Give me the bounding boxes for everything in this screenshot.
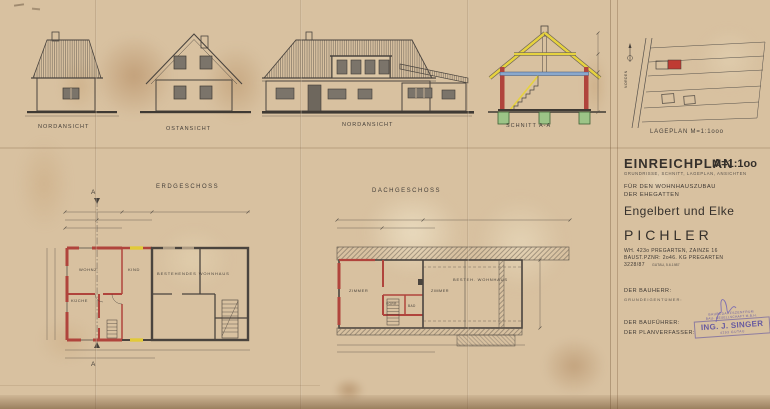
room-label-bestand: BESTEHENDES WOHNHAUS xyxy=(157,271,230,276)
wall-section xyxy=(584,76,589,111)
siteplan-drawing: NORDEN xyxy=(622,32,768,132)
role-grundeigentuemer: GRUNDEIGENTÜMER: xyxy=(624,297,682,302)
room-label-kind: KIND xyxy=(128,267,140,272)
dormer-window xyxy=(351,60,361,74)
room-label-zimmer1: ZIMMER xyxy=(349,288,368,293)
elevation-east-drawing xyxy=(138,24,253,116)
knee-wall xyxy=(584,67,589,72)
neighbour-building xyxy=(684,96,696,105)
dormer-window xyxy=(337,60,347,74)
elevation1-label: NORDANSICHT xyxy=(38,124,89,130)
stair xyxy=(107,320,117,338)
fold-line xyxy=(610,0,611,409)
room-label-vorraum: VORR. xyxy=(386,302,398,306)
window xyxy=(358,89,372,99)
plan-outline xyxy=(339,260,522,328)
ground-line xyxy=(262,111,474,114)
ceiling-slab xyxy=(500,72,589,76)
section-marker-a-top: A xyxy=(91,189,96,196)
north-label: NORDEN xyxy=(624,70,628,88)
address-line2: BAUST.PZNR: 2o46. KG PREGARTEN xyxy=(624,255,723,261)
door xyxy=(308,85,321,111)
knee-wall xyxy=(500,67,505,72)
window xyxy=(328,89,346,99)
window xyxy=(276,88,294,99)
crease-line xyxy=(0,147,770,149)
chimney xyxy=(418,279,423,285)
door-swing xyxy=(112,294,122,304)
elevation-north-small-drawing xyxy=(25,28,120,118)
road xyxy=(632,38,646,128)
stair xyxy=(222,300,238,338)
owner-first-names: Engelbert und Elke xyxy=(624,204,734,218)
section-a-a-drawing xyxy=(488,20,606,126)
fold-tick xyxy=(14,3,24,6)
room-label-bad: BAD xyxy=(408,304,416,308)
parcel-boundary xyxy=(648,70,763,76)
dachgeschoss-plan-drawing: ZIMMER VORR. BAD ZIMMER BESTEH. WOHNHAUS xyxy=(325,195,580,355)
wall xyxy=(156,80,232,111)
roof xyxy=(33,40,101,78)
window xyxy=(200,56,212,69)
new-building-red xyxy=(668,60,681,69)
erdgeschoss-title: ERDGESCHOSS xyxy=(156,184,219,190)
annex-window xyxy=(442,90,455,99)
room-label-bestand: BESTEH. WOHNHAUS xyxy=(453,277,508,282)
existing-wall-hatched xyxy=(499,260,504,328)
erdgeschoss-plan-drawing: A A xyxy=(35,178,310,368)
role-baufuehrer: DER BAUFÜHRER: xyxy=(624,320,680,326)
ground-line xyxy=(140,111,251,113)
plan-number: 3228/87 xyxy=(624,262,645,268)
address-line1: WH. 423o PREGARTEN, ZAINZE 16 xyxy=(624,248,718,254)
owner-surname: PICHLER xyxy=(624,227,713,243)
neighbour-building xyxy=(662,94,675,104)
room-label-zimmer2: ZIMMER xyxy=(431,289,449,293)
section-label: SCHNITT A-A xyxy=(506,123,551,129)
ground-line xyxy=(27,111,117,113)
purpose-line2: DER EHEGATTEN xyxy=(624,192,679,198)
purpose-line1: FÜR DEN WOHNHAUSZUBAU xyxy=(624,184,716,190)
crease-line xyxy=(0,385,320,386)
elevation2-label: OSTANSICHT xyxy=(166,126,211,132)
annex-window xyxy=(408,88,432,98)
window xyxy=(200,86,212,99)
roof-edge xyxy=(146,34,242,84)
room-label-wohnzimmer: WOHNZ. xyxy=(79,267,99,272)
plan-subtitle: GRUNDRISSE, SCHNITT, LAGEPLAN, ANSICHTEN xyxy=(624,171,747,176)
existing-roof-band xyxy=(337,328,522,335)
foundation xyxy=(579,112,590,124)
fold-line xyxy=(617,0,618,409)
siteplan-label: LAGEPLAN M=1:1ooo xyxy=(650,129,724,135)
sheet-bottom-shadow xyxy=(0,395,770,409)
plan-sheet: NORDEN A A xyxy=(0,0,770,409)
dachgeschoss-title: DACHGESCHOSS xyxy=(372,188,441,194)
date-note: GUTAU, 5.6.1987 xyxy=(652,263,680,267)
existing-building xyxy=(656,61,668,69)
elevation-main-label: NORDANSICHT xyxy=(342,122,393,128)
plan-scale: M=1:1oo xyxy=(712,158,757,170)
parcel-boundary xyxy=(642,118,757,122)
signature xyxy=(712,294,746,324)
window xyxy=(174,56,186,69)
parcel-boundary xyxy=(644,102,759,108)
existing-roof-band xyxy=(337,247,569,260)
section-marker-a-bottom: A xyxy=(91,361,96,368)
parcel-boundary xyxy=(646,86,761,92)
role-bauherr: DER BAUHERR: xyxy=(624,288,672,294)
parcel-boundary xyxy=(650,42,765,48)
dormer-window xyxy=(379,60,389,74)
window xyxy=(174,86,186,99)
room-label-kueche: KÜCHE xyxy=(71,298,88,303)
dormer-window xyxy=(365,60,375,74)
chimney xyxy=(306,32,312,40)
role-planverfasser: DER PLANVERFASSER: xyxy=(624,330,695,336)
terrace xyxy=(457,335,515,346)
fold-tick xyxy=(32,8,40,11)
elevation-north-main-drawing xyxy=(262,20,474,118)
wall-section xyxy=(500,76,505,111)
